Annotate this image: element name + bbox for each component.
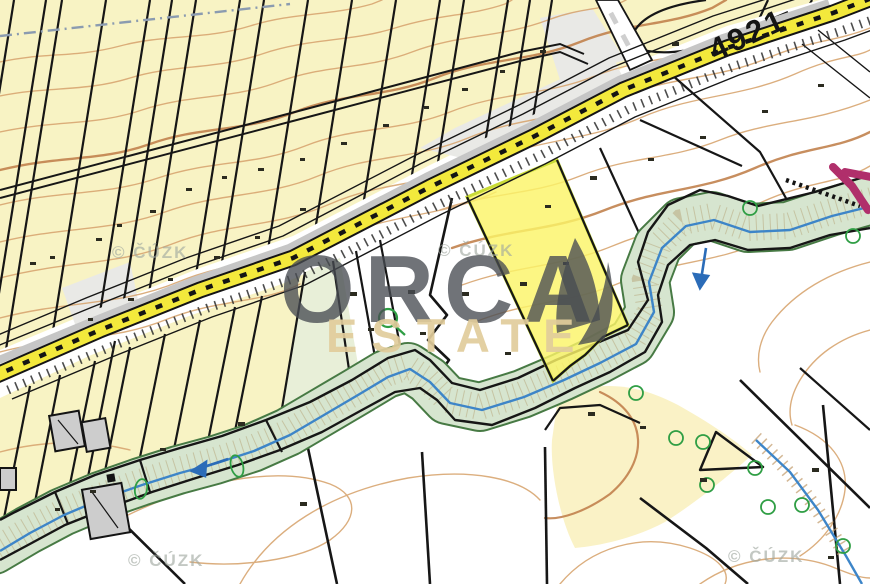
cuzk-watermark: © ČÚZK: [728, 547, 804, 566]
cuzk-watermark: © ČÚZK: [112, 243, 188, 262]
estate-watermark-text: ESTATE: [326, 309, 588, 362]
farmland-bottom-right-blob: [552, 386, 752, 548]
cadastral-map-viewport[interactable]: © ČÚZK © ČÚZK © ČÚZK © ČÚZK ORCA ESTATE …: [0, 0, 870, 584]
cuzk-watermark: © ČÚZK: [128, 551, 204, 570]
orca-estate-watermark: ORCA ESTATE: [280, 236, 613, 362]
